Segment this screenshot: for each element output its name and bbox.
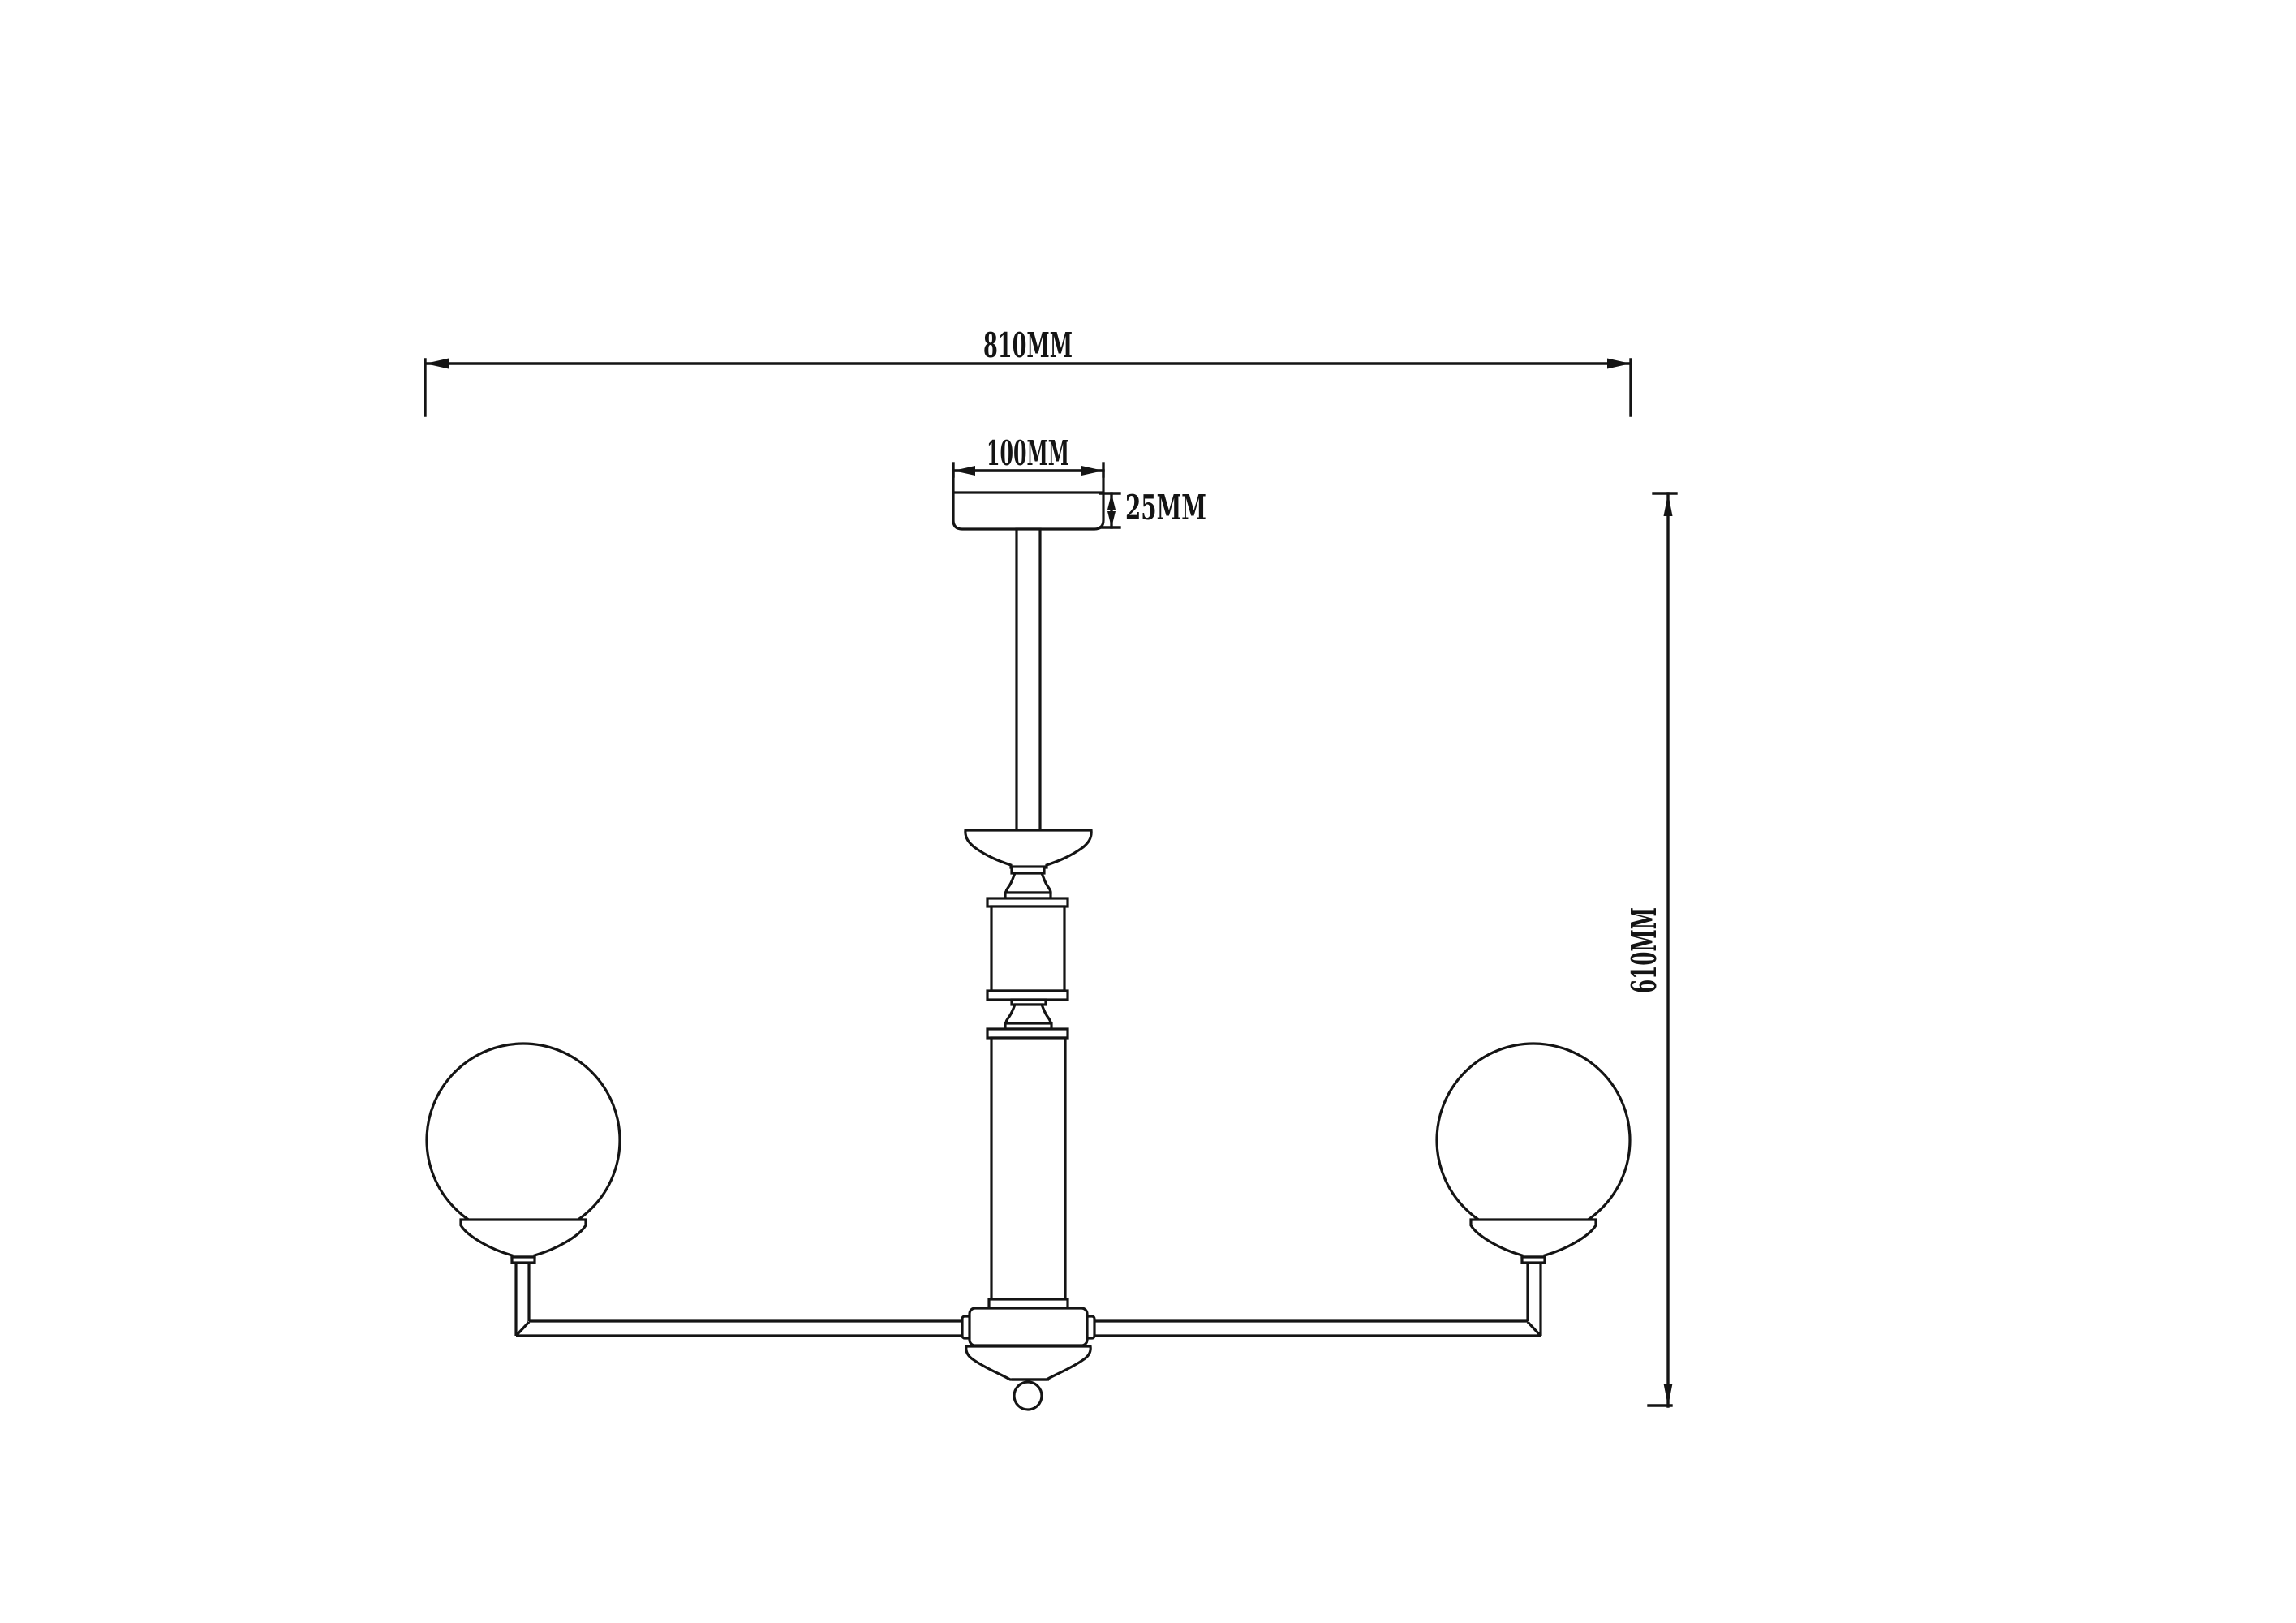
- left-globe-holder: [461, 1220, 586, 1257]
- right-globe-shade: [1437, 1044, 1630, 1237]
- canopy-width-label: 100MM: [987, 433, 1069, 473]
- column-top-cap: [987, 1029, 1068, 1038]
- upper-spool-body: [1006, 873, 1051, 893]
- column-bottom-cuff: [989, 1299, 1068, 1308]
- right-lamp: [1437, 1044, 1630, 1336]
- column-body: [991, 1038, 1065, 1299]
- left-globe-shade: [427, 1044, 620, 1237]
- cylinder-bottom-cap: [987, 991, 1068, 1000]
- canopy-height-arrow-up: [1107, 493, 1116, 510]
- dimension-overall-height: 610MM: [1624, 493, 1676, 1406]
- junction-box: [962, 1308, 1094, 1345]
- height-arrow-up: [1664, 493, 1673, 516]
- canopy-outline: [953, 471, 1103, 529]
- left-stem-collar: [512, 1257, 535, 1263]
- left-arm-miter-line: [517, 1322, 529, 1335]
- height-arrow-down: [1664, 1384, 1673, 1406]
- left-lamp: [427, 1044, 620, 1336]
- main-column: [987, 1029, 1068, 1308]
- lower-spool-body: [1006, 1005, 1051, 1023]
- hanging-rod: [1017, 529, 1040, 830]
- cylinder-body: [991, 906, 1064, 991]
- finial-bell: [966, 1346, 1090, 1380]
- junction-box-body: [970, 1308, 1087, 1345]
- right-stem-collar: [1522, 1257, 1545, 1263]
- width-arrow-right: [1607, 359, 1631, 369]
- lower-spool: [1005, 1000, 1051, 1029]
- drawing-canvas: 810MM 100MM 25MM 610MM: [0, 0, 2296, 1623]
- width-arrow-left: [425, 359, 449, 369]
- right-globe-holder: [1471, 1220, 1596, 1257]
- trumpet-coupling: [965, 830, 1091, 867]
- canopy-height-arrow-down: [1107, 511, 1116, 527]
- overall-width-label: 810MM: [983, 325, 1073, 365]
- upper-spool: [1005, 867, 1051, 898]
- overall-height-label: 610MM: [1624, 907, 1664, 993]
- ceiling-canopy: [953, 471, 1103, 529]
- bottom-finial: [966, 1346, 1090, 1410]
- canopy-height-label: 25MM: [1125, 488, 1206, 527]
- finial-ball: [1014, 1382, 1042, 1410]
- dimension-canopy-width: 100MM: [953, 433, 1103, 476]
- dimension-overall-width: 810MM: [425, 325, 1631, 415]
- dimension-canopy-height: 25MM: [1100, 488, 1206, 527]
- chandelier-dimension-drawing: 810MM 100MM 25MM 610MM: [0, 0, 2296, 1623]
- right-arm-miter-line: [1528, 1322, 1540, 1335]
- center-cylinder: [987, 898, 1068, 1000]
